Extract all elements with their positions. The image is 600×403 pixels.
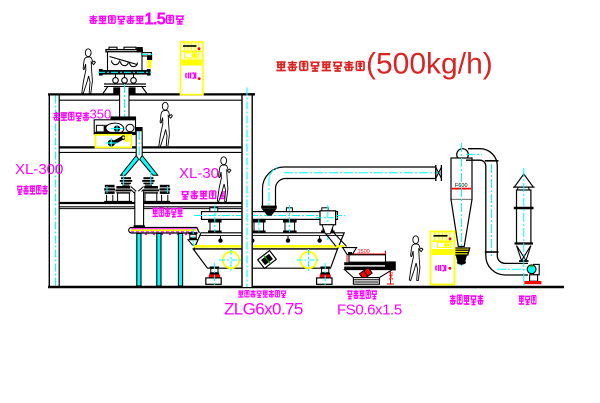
svg-text:(500kg/h): (500kg/h) — [366, 48, 493, 81]
svg-text:ZLG6x0.75: ZLG6x0.75 — [224, 300, 303, 319]
svg-text:XL-300: XL-300 — [15, 161, 63, 178]
svg-text:1500: 1500 — [358, 249, 370, 255]
svg-text:FS0.6x1.5: FS0.6x1.5 — [337, 302, 402, 319]
svg-text:350: 350 — [90, 107, 112, 122]
svg-text:1.5: 1.5 — [145, 11, 166, 28]
svg-text:340: 340 — [389, 272, 395, 281]
